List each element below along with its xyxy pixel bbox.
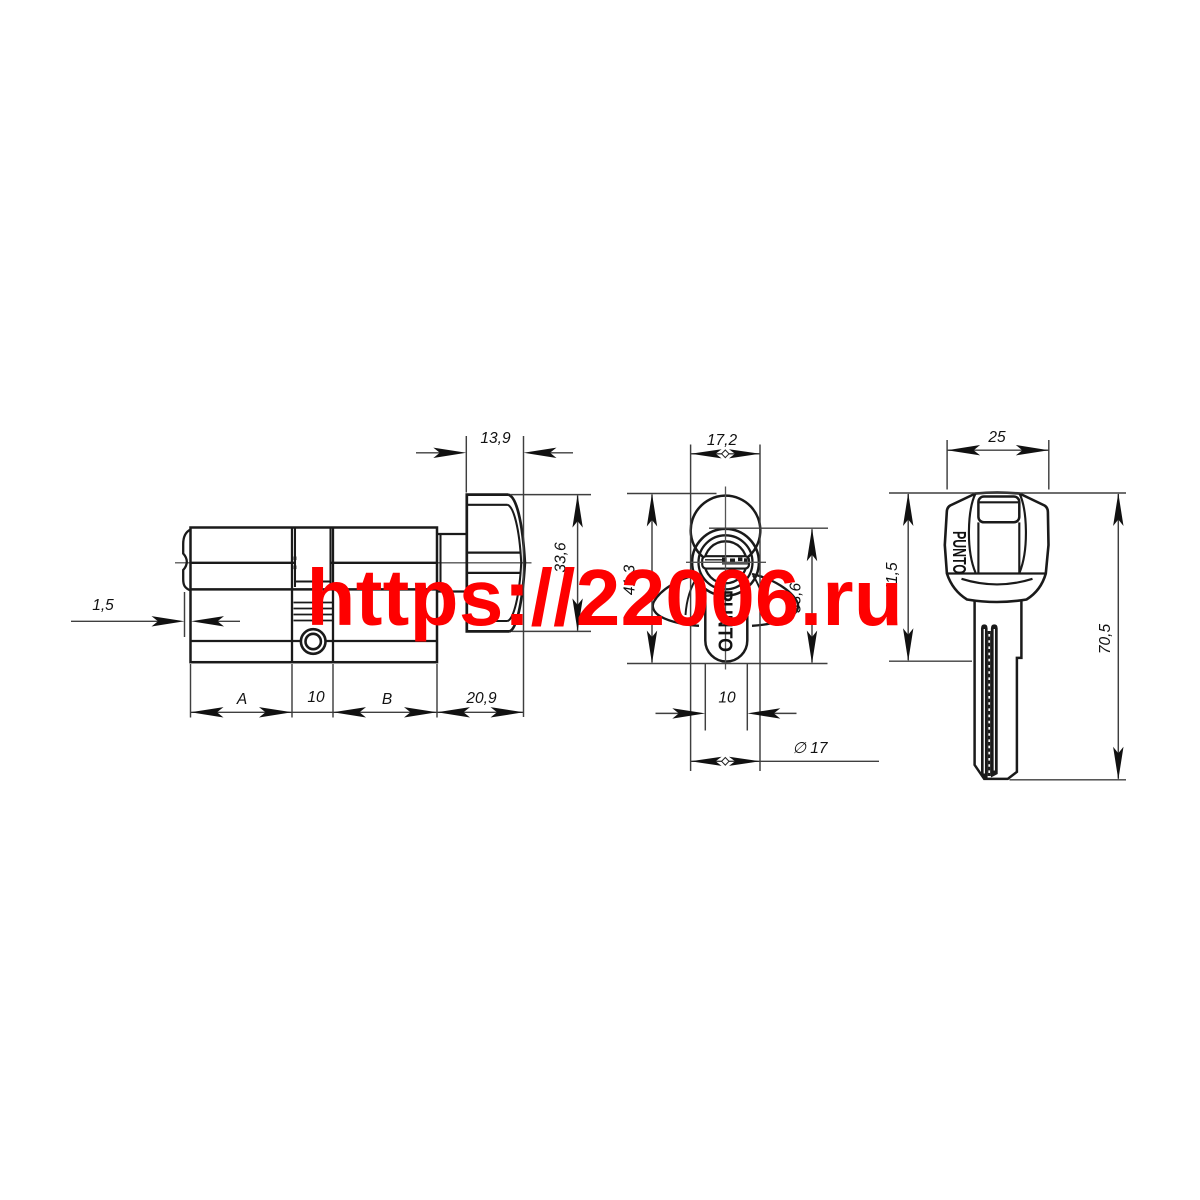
svg-text:70,5: 70,5: [1097, 624, 1114, 655]
svg-text:PUNTO: PUNTO: [949, 531, 969, 574]
svg-text:20,9: 20,9: [465, 690, 497, 707]
svg-text:B: B: [382, 691, 392, 708]
svg-text:10: 10: [307, 689, 325, 706]
svg-text:25: 25: [987, 429, 1006, 446]
svg-text:10: 10: [718, 690, 736, 707]
svg-text:13,9: 13,9: [480, 430, 511, 447]
svg-text:A: A: [236, 691, 247, 708]
svg-text:∅ 17: ∅ 17: [792, 740, 828, 757]
svg-text:1,5: 1,5: [92, 597, 114, 614]
svg-text:17,2: 17,2: [707, 432, 738, 449]
